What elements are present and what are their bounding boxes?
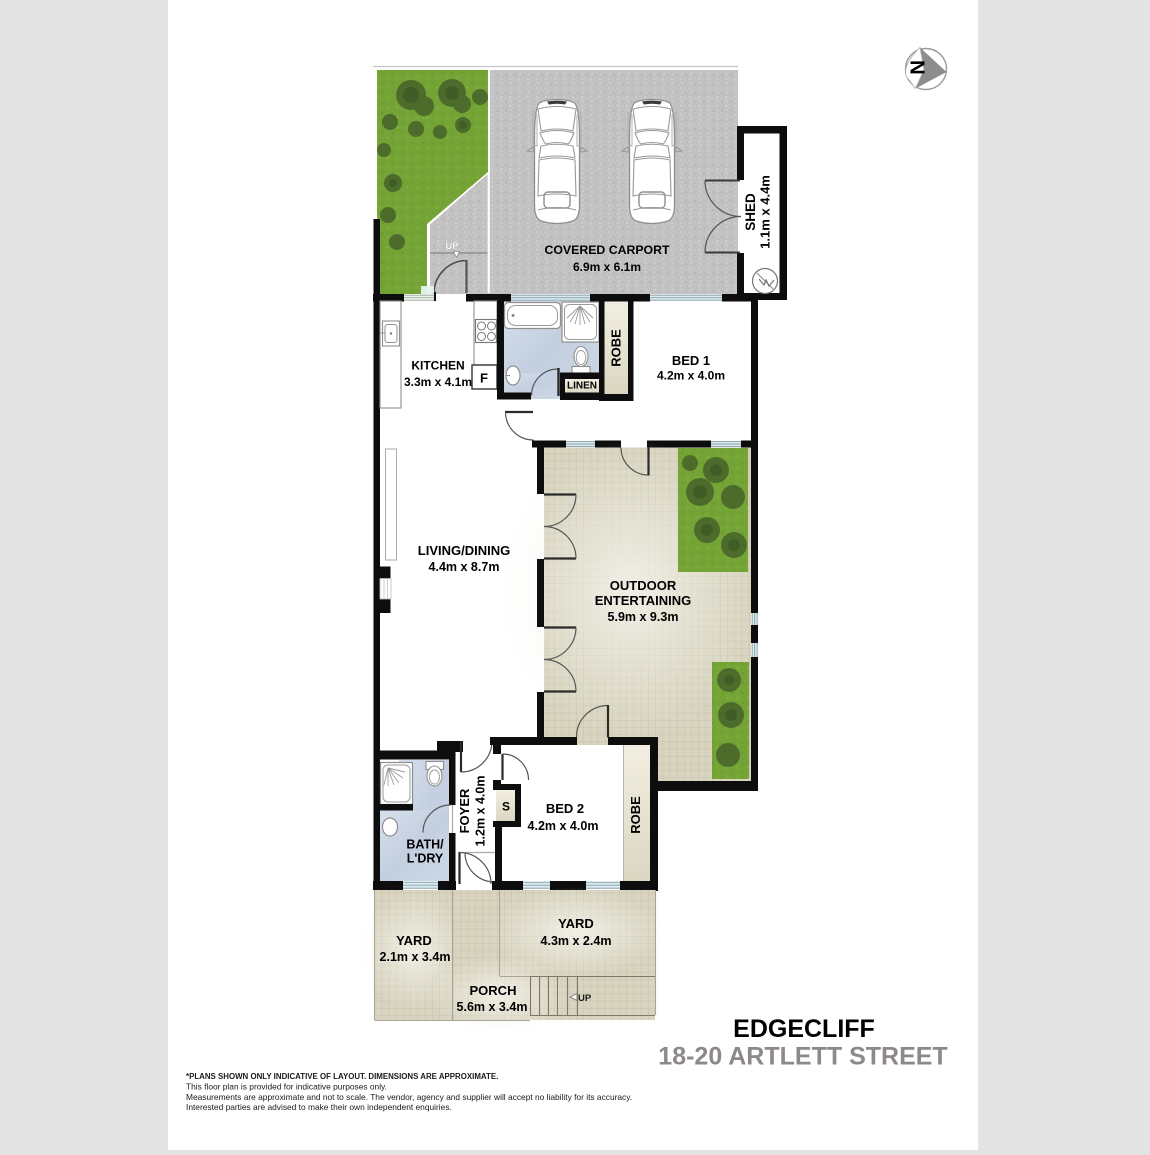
svg-text:LINEN: LINEN (567, 381, 597, 392)
svg-text:F: F (480, 371, 488, 386)
svg-text:ROBE: ROBE (628, 796, 643, 834)
svg-text:BED 1: BED 1 (672, 353, 710, 368)
svg-text:UP: UP (578, 993, 592, 1004)
svg-text:ENTERTAINING: ENTERTAINING (595, 593, 692, 608)
svg-text:6.9m x 6.1m: 6.9m x 6.1m (573, 260, 641, 274)
svg-text:YARD: YARD (396, 933, 432, 948)
svg-text:SHED: SHED (743, 193, 758, 231)
svg-text:L'DRY: L'DRY (407, 852, 444, 866)
svg-text:S: S (502, 800, 510, 814)
svg-text:KITCHEN: KITCHEN (411, 359, 464, 373)
svg-text:EDGECLIFF: EDGECLIFF (733, 1015, 875, 1043)
svg-text:4.4m x 8.7m: 4.4m x 8.7m (429, 560, 500, 574)
svg-text:18-20 ARTLETT STREET: 18-20 ARTLETT STREET (658, 1043, 947, 1071)
svg-text:YARD: YARD (558, 916, 594, 931)
svg-text:1.1m x 4.4m: 1.1m x 4.4m (758, 175, 773, 249)
svg-text:*PLANS SHOWN ONLY INDICATIVE O: *PLANS SHOWN ONLY INDICATIVE OF LAYOUT. … (186, 1072, 498, 1081)
svg-text:FOYER: FOYER (457, 788, 472, 833)
svg-text:2.1m x 3.4m: 2.1m x 3.4m (380, 950, 451, 964)
svg-text:BED 2: BED 2 (546, 801, 584, 816)
svg-text:N: N (906, 60, 929, 75)
svg-text:4.2m x 4.0m: 4.2m x 4.0m (528, 819, 599, 833)
svg-text:3.3m x 4.1m: 3.3m x 4.1m (404, 375, 472, 389)
svg-text:LIVING/DINING: LIVING/DINING (418, 543, 510, 558)
svg-text:This floor plan is provided fo: This floor plan is provided for indicati… (186, 1082, 387, 1092)
svg-text:1.2m x 4.0m: 1.2m x 4.0m (474, 776, 488, 847)
svg-text:COVERED CARPORT: COVERED CARPORT (544, 243, 670, 257)
svg-text:Measurements are approximate a: Measurements are approximate and not to … (186, 1092, 632, 1102)
svg-text:PORCH: PORCH (470, 983, 517, 998)
svg-text:4.2m x 4.0m: 4.2m x 4.0m (657, 369, 725, 383)
svg-text:5.9m x 9.3m: 5.9m x 9.3m (608, 610, 679, 624)
svg-text:ROBE: ROBE (609, 329, 624, 367)
svg-text:BATH/: BATH/ (406, 838, 444, 852)
svg-text:4.3m x 2.4m: 4.3m x 2.4m (541, 934, 612, 948)
svg-text:OUTDOOR: OUTDOOR (610, 578, 677, 593)
svg-text:Interested parties are advised: Interested parties are advised to make t… (186, 1102, 452, 1112)
svg-text:UP: UP (445, 241, 459, 252)
svg-text:5.6m x 3.4m: 5.6m x 3.4m (457, 1000, 528, 1014)
